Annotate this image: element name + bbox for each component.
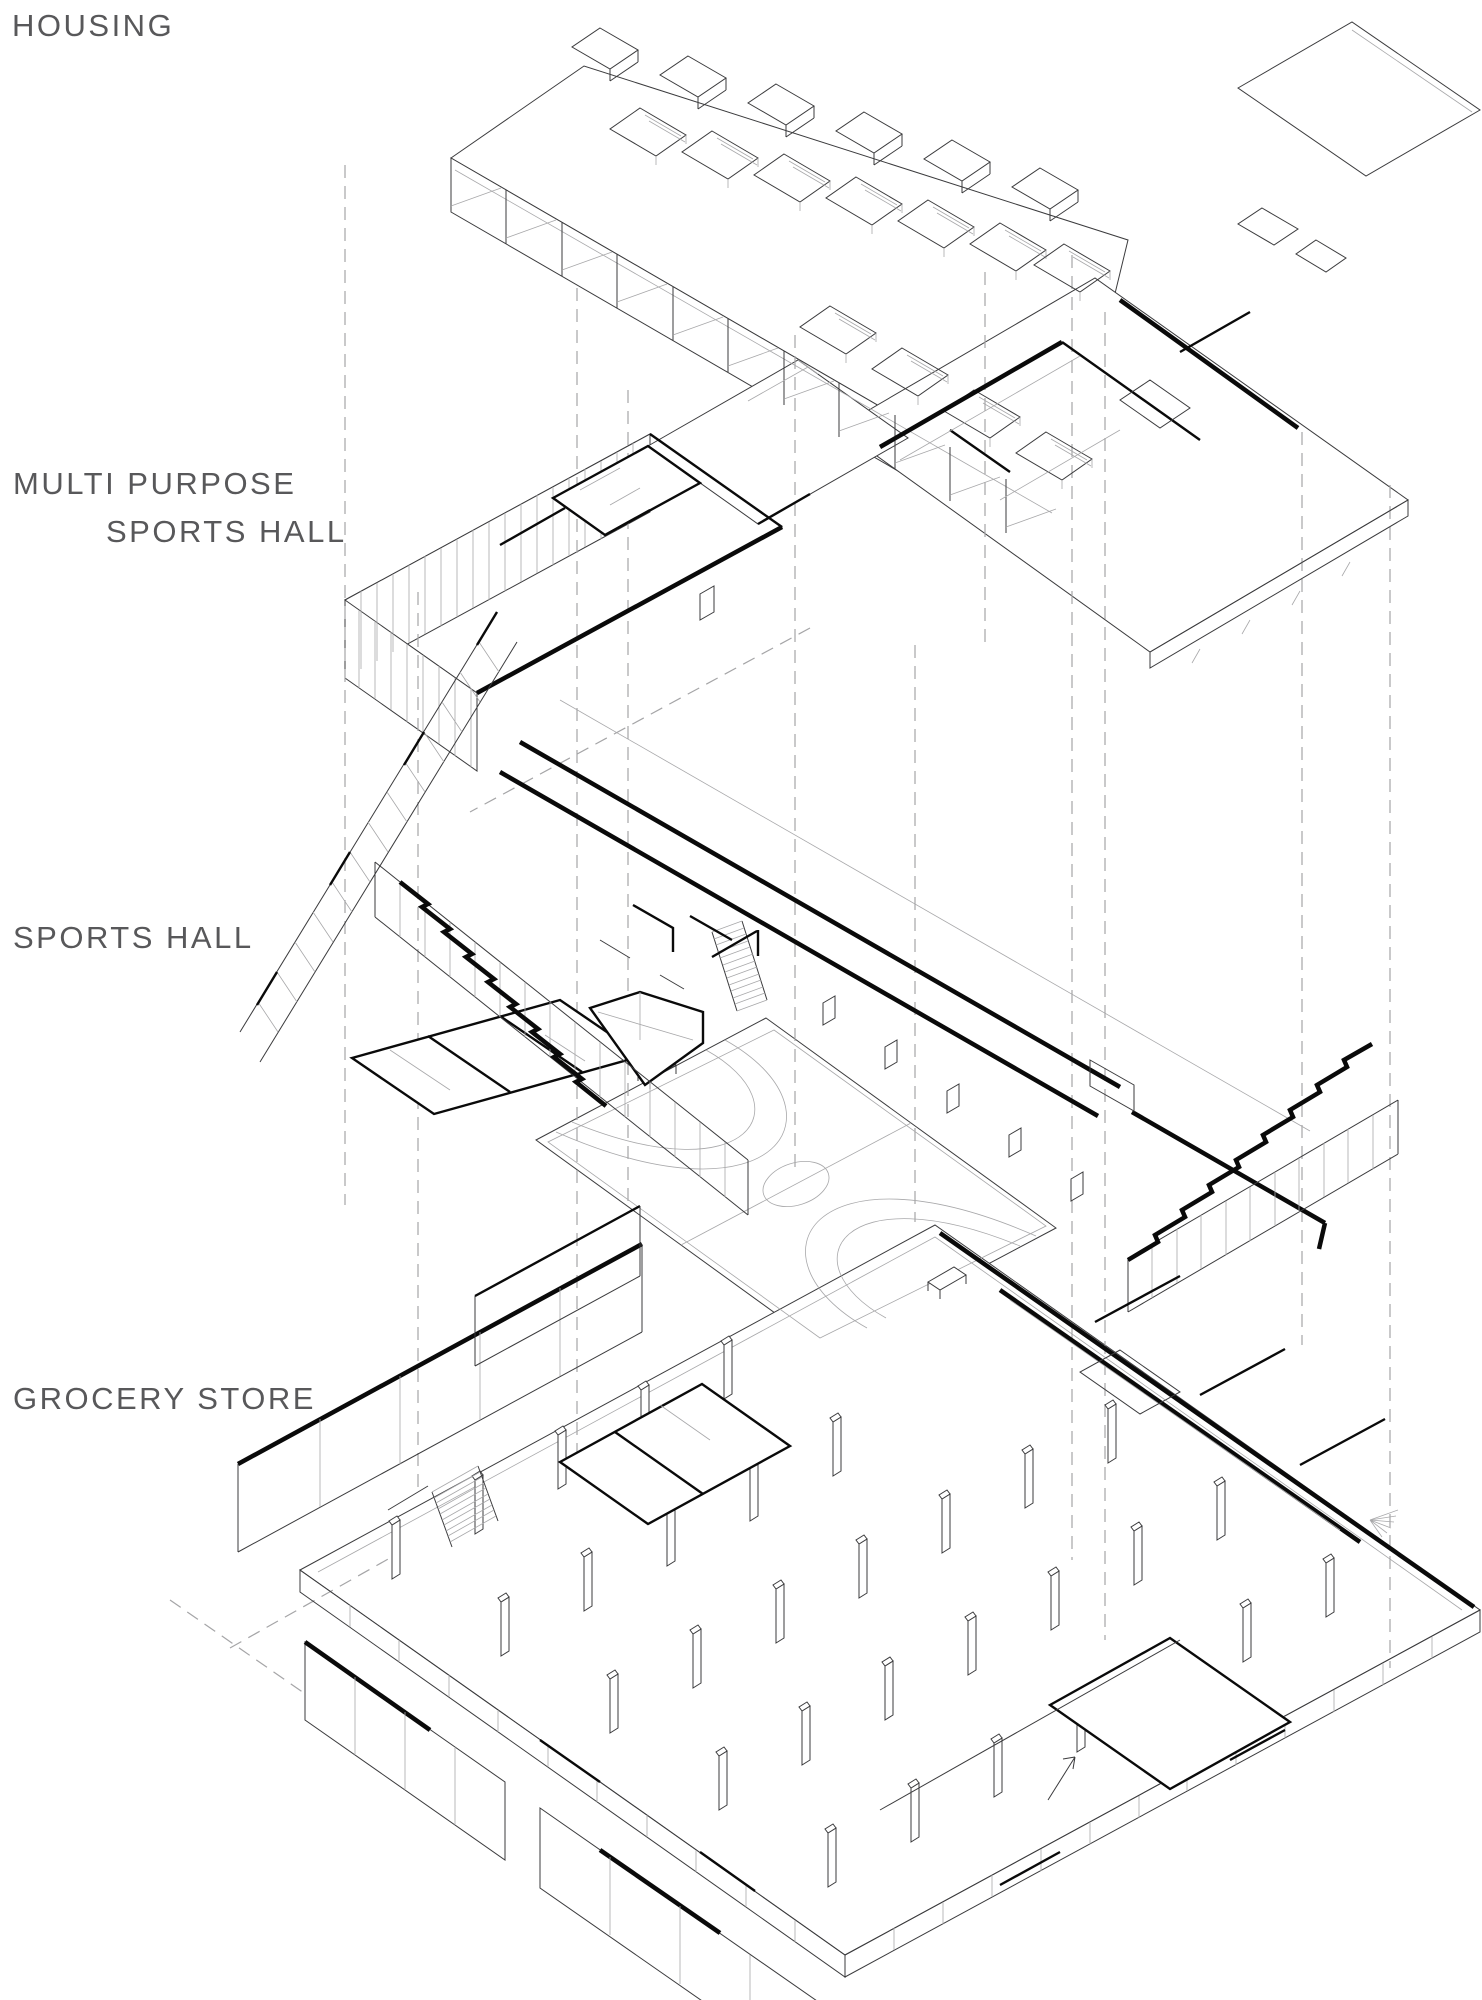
pleated-wall-southeast xyxy=(1128,1044,1398,1312)
exploded-axonometric-diagram: HOUSING MULTI PURPOSE SPORTS HALL SPORTS… xyxy=(0,0,1482,2000)
axonometric-drawing xyxy=(0,0,1482,2000)
